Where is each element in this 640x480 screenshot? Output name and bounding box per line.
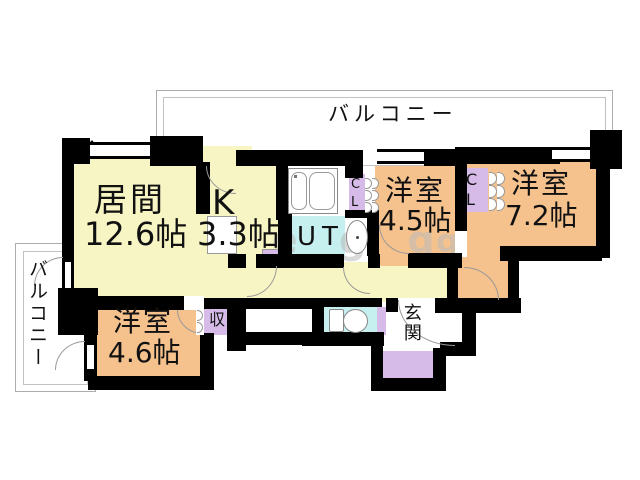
utility-label: UT — [297, 224, 344, 251]
window — [90, 142, 151, 159]
balcony-door-opening — [62, 262, 74, 288]
floor-plan: e g g g — [0, 0, 640, 480]
wall-segment — [62, 158, 74, 262]
west-room-45-name: 洋室 — [385, 176, 445, 205]
balcony-left-label: バルコニー — [26, 259, 46, 369]
wall-segment — [246, 332, 304, 345]
wall-segment — [228, 254, 246, 268]
wall-segment — [368, 254, 380, 268]
west-room-46-name: 洋室 — [113, 307, 173, 336]
wall-segment — [88, 376, 214, 390]
wall-segment — [200, 333, 214, 378]
toilet-tank — [329, 309, 344, 332]
wall-segment — [84, 333, 97, 345]
closet-b-label: C L — [466, 170, 477, 210]
wall-segment — [58, 288, 98, 335]
wall-segment — [236, 150, 349, 166]
wall-segment — [386, 298, 398, 312]
wall-segment — [204, 298, 318, 309]
wall-segment — [318, 298, 382, 307]
living-room-name: 居間 — [94, 183, 166, 218]
toilet-bowl — [343, 309, 368, 333]
washbasin-drain-dot — [356, 236, 359, 239]
wall-segment — [462, 147, 560, 164]
storage-label: 収 — [209, 312, 225, 329]
wall-segment — [373, 378, 446, 391]
wall-segment — [367, 212, 379, 256]
shoe-closet-strip — [377, 307, 386, 335]
wall-segment — [345, 150, 363, 178]
west-room-72-size: 7.2帖 — [505, 201, 578, 230]
balcony-door-opening — [84, 345, 97, 369]
wall-segment — [408, 253, 462, 268]
window — [552, 147, 594, 162]
living-room-size: 12.6帖 — [84, 218, 187, 252]
west-room-45-size: 4.5帖 — [379, 206, 452, 235]
bathtub-drain-dot — [294, 175, 297, 178]
west-room-72-name: 洋室 — [511, 169, 571, 198]
wall-segment — [596, 164, 610, 258]
west-room-46-size: 4.6帖 — [108, 338, 181, 367]
wall-segment — [227, 309, 246, 351]
accordion-door-mark — [365, 178, 372, 189]
entrance-porch — [383, 351, 435, 380]
entrance-label: 玄関 — [401, 303, 420, 343]
door-opening — [184, 296, 204, 310]
wall-segment — [278, 212, 292, 258]
wall-segment — [371, 336, 383, 391]
closet-a-label: C L — [351, 176, 360, 211]
accordion-door-mark — [365, 190, 372, 201]
window — [377, 149, 425, 164]
bathtub-inner-right — [309, 172, 335, 210]
balcony-top-label: バルコニー — [328, 103, 458, 125]
kitchen-size: 3.3帖 — [197, 218, 280, 252]
